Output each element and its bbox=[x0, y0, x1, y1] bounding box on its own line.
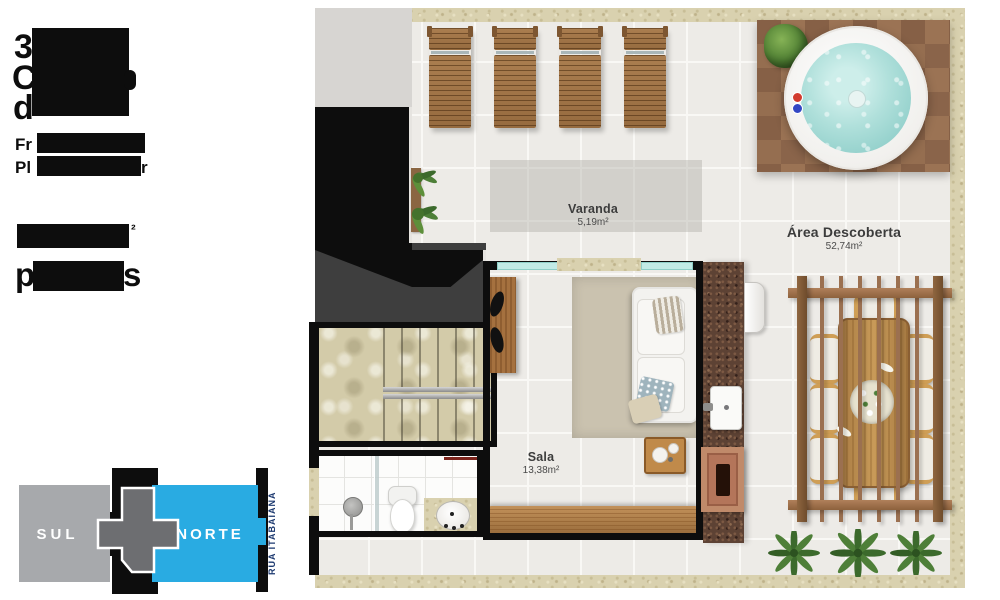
lounge-chair-body bbox=[429, 55, 471, 128]
faucet-handle-left bbox=[444, 524, 448, 528]
lounge-chair-headrest bbox=[624, 28, 666, 50]
roof-slab-gray bbox=[315, 8, 412, 107]
stairs-wall-bottom bbox=[317, 441, 497, 447]
sideboard-decor bbox=[487, 290, 506, 318]
room-name: Varanda bbox=[530, 202, 656, 216]
redacted-subtitle-block-2 bbox=[37, 156, 141, 176]
stair-treads-lower bbox=[383, 399, 491, 441]
stair-treads-upper bbox=[383, 328, 491, 387]
pergola-beam-bottom bbox=[788, 500, 952, 510]
sideboard bbox=[487, 277, 516, 373]
jacuzzi-drain bbox=[848, 90, 866, 108]
counter-faucet bbox=[703, 403, 713, 411]
redacted-letter-remnant bbox=[124, 70, 136, 90]
roof-ridge-b bbox=[412, 250, 486, 287]
room-area: 5,19m² bbox=[530, 217, 656, 228]
toilet-bowl bbox=[390, 499, 415, 533]
stair-handrail-upper bbox=[383, 387, 493, 392]
dining-chair bbox=[810, 334, 840, 384]
lounge-chair-gap bbox=[431, 51, 469, 54]
lounge-chair-gap bbox=[496, 51, 534, 54]
grill-opening bbox=[716, 464, 730, 496]
room-name: Sala bbox=[505, 450, 577, 464]
lounge-chair bbox=[494, 28, 536, 128]
pergola-slat bbox=[858, 276, 862, 522]
privative-fragment-end: s bbox=[123, 258, 141, 291]
area-superscript: ² bbox=[131, 222, 136, 236]
bathroom-wall-bottom bbox=[317, 531, 483, 537]
bathroom-wall-top bbox=[317, 450, 483, 456]
counter-sink-drain bbox=[724, 405, 729, 410]
subtitle-fragment-2: Pl bbox=[15, 159, 31, 176]
pergola-slat bbox=[896, 276, 900, 522]
room-label-sala: Sala 13,38m² bbox=[505, 450, 577, 476]
pergola-slat bbox=[877, 276, 881, 522]
lounge-chair-headrest bbox=[494, 28, 536, 50]
window-glass bbox=[641, 262, 693, 270]
title-fragment-3: d bbox=[13, 91, 34, 125]
wall-left-outer bbox=[309, 322, 319, 575]
planter-plant-icon bbox=[396, 160, 440, 240]
pergola-beam-top bbox=[788, 288, 952, 298]
redacted-privative-block bbox=[33, 261, 124, 291]
north-square-tab bbox=[258, 518, 266, 545]
shower-stem bbox=[350, 514, 353, 530]
subtitle-fragment-1: Fr bbox=[15, 136, 32, 153]
roof-section-dark bbox=[315, 243, 486, 323]
palm-plant-icon bbox=[830, 529, 886, 577]
lounge-chair bbox=[624, 28, 666, 128]
redacted-subtitle-block-1 bbox=[37, 133, 145, 153]
sala-wall-left bbox=[483, 261, 490, 540]
dining-chair bbox=[810, 434, 840, 484]
lounge-chair bbox=[559, 28, 601, 128]
sala-wall-bottom bbox=[483, 533, 703, 540]
bathroom-door bbox=[309, 468, 319, 516]
room-label-area-descoberta: Área Descoberta 52,74m² bbox=[768, 224, 920, 252]
wood-bench bbox=[488, 506, 698, 534]
pergola-slat bbox=[915, 276, 919, 522]
lounge-chair bbox=[429, 28, 471, 128]
wall-right bbox=[950, 8, 965, 588]
floor-plan-page: 3 C d Fr Pl r ² p s SUL NORTE RUA ITABAI… bbox=[0, 0, 1000, 600]
south-label: SUL bbox=[19, 526, 96, 543]
shower-head-icon bbox=[343, 497, 363, 517]
jacuzzi-button-blue bbox=[792, 103, 803, 114]
stair-handrail-lower bbox=[383, 394, 493, 399]
beige-pillow bbox=[627, 394, 662, 425]
room-area: 13,38m² bbox=[505, 465, 577, 476]
sofa bbox=[632, 287, 698, 423]
sink-drain-dot bbox=[450, 512, 454, 516]
jacuzzi-button-red bbox=[792, 92, 803, 103]
faucet-spout bbox=[452, 526, 456, 530]
lounge-chair-headrest bbox=[559, 28, 601, 50]
lounge-chair-gap bbox=[626, 51, 664, 54]
outdoor-sink-unit bbox=[744, 282, 765, 333]
lounge-chair-body bbox=[624, 55, 666, 128]
roof-ridge-a bbox=[315, 243, 412, 287]
stairs-wall-top bbox=[317, 322, 497, 328]
pergola-slat bbox=[839, 276, 843, 522]
shower-glass-partition bbox=[374, 456, 379, 531]
subtitle-fragment-3: r bbox=[141, 159, 148, 176]
building-footprint-icon bbox=[92, 482, 184, 578]
pergola-post-right bbox=[933, 276, 943, 522]
street-name-label: RUA ITABAIANA bbox=[267, 470, 281, 596]
side-table bbox=[644, 437, 686, 474]
room-label-varanda: Varanda 5,19m² bbox=[530, 202, 656, 228]
redacted-area-block bbox=[17, 224, 129, 248]
room-name: Área Descoberta bbox=[768, 224, 920, 240]
tray-dot bbox=[668, 457, 673, 462]
window-wall-segment bbox=[557, 258, 641, 271]
counter-sink bbox=[710, 386, 742, 430]
lounge-chair-headrest bbox=[429, 28, 471, 50]
barbecue-grill bbox=[701, 447, 744, 512]
faucet-handle-right bbox=[460, 524, 464, 528]
lounge-chair-body bbox=[494, 55, 536, 128]
towel-bar bbox=[444, 457, 481, 460]
room-area: 52,74m² bbox=[768, 241, 920, 252]
tray-cup bbox=[668, 443, 679, 454]
window-glass bbox=[497, 262, 559, 270]
flower-centerpiece bbox=[850, 380, 894, 424]
pergola-post-left bbox=[797, 276, 807, 522]
palm-plant-icon bbox=[768, 531, 820, 575]
lounge-chair-gap bbox=[561, 51, 599, 54]
sideboard-decor bbox=[488, 326, 506, 354]
tray-plate bbox=[652, 447, 668, 463]
lounge-chair-body bbox=[559, 55, 601, 128]
dining-chair bbox=[810, 384, 840, 434]
pergola-slat bbox=[820, 276, 824, 522]
redacted-title-block bbox=[32, 28, 129, 116]
striped-pillow bbox=[652, 295, 685, 335]
palm-plant-icon bbox=[890, 531, 942, 575]
